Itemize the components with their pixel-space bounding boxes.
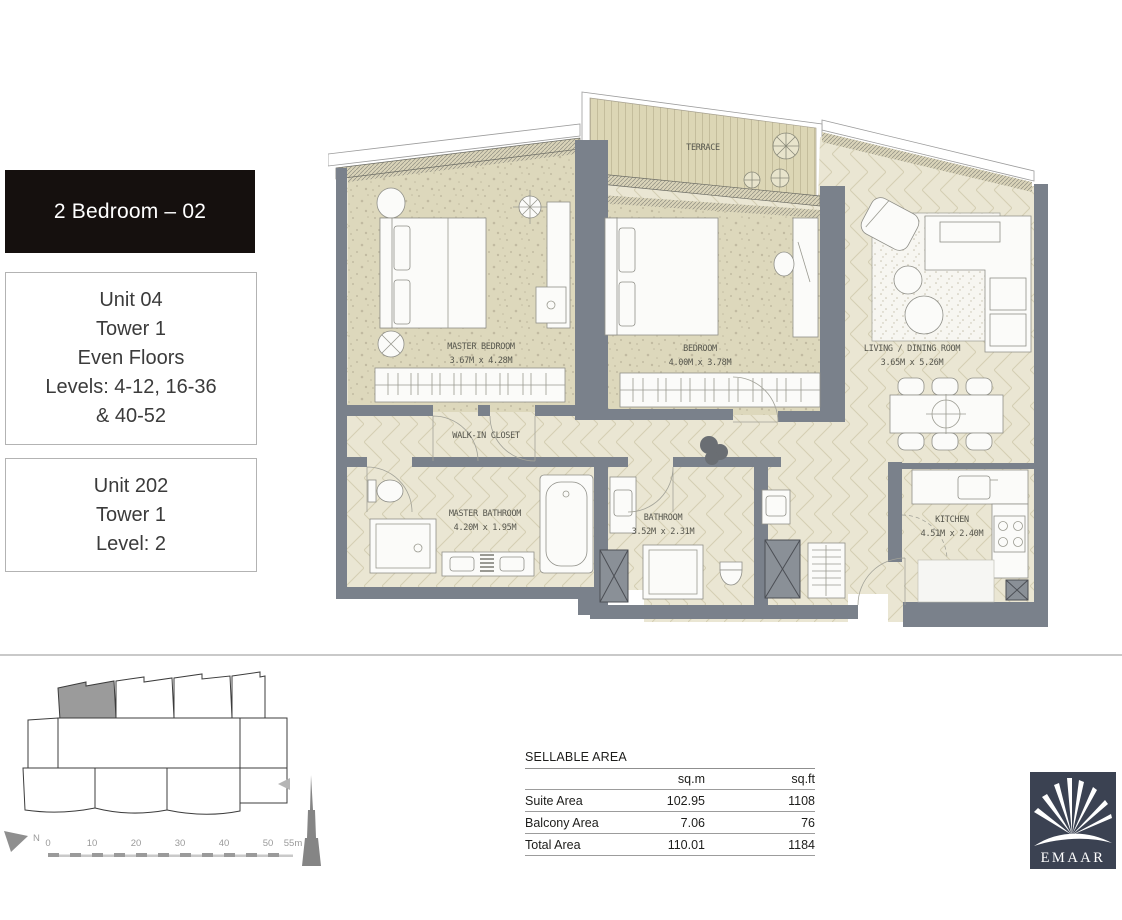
col-header-sqft: sq.ft (705, 772, 815, 786)
room-dims-master-bedroom: 3.67M x 4.28M (450, 356, 513, 366)
room-label-terrace: TERRACE (686, 143, 720, 153)
svg-text:30: 30 (175, 838, 186, 849)
emaar-logo: EMAAR (1030, 772, 1116, 869)
table-row: Balcony Area 7.06 76 (525, 812, 815, 834)
row-sqm: 102.95 (635, 794, 705, 808)
stair-riser-icon (808, 543, 845, 598)
scale-bar: 0 10 20 30 40 50 55m (45, 838, 302, 857)
key-plan: N 0 10 20 30 40 50 55m (0, 660, 332, 875)
sellable-area-table: SELLABLE AREA sq.m sq.ft Suite Area 102.… (525, 750, 815, 856)
key-plan-highlighted-unit (58, 681, 116, 720)
room-dims-master-bathroom: 4.20M x 1.95M (454, 523, 517, 533)
unit-line: & 40-52 (96, 402, 166, 431)
col-header-sqm: sq.m (635, 772, 705, 786)
unit-line: Level: 2 (96, 530, 166, 559)
table-row: Total Area 110.01 1184 (525, 834, 815, 856)
room-label-living-dining: LIVING / DINING ROOM (864, 344, 961, 354)
room-label-bathroom: BATHROOM (644, 513, 683, 523)
plan-title: 2 Bedroom – 02 (54, 200, 206, 224)
brochure-page: 2 Bedroom – 02 Unit 04 Tower 1 Even Floo… (0, 0, 1122, 920)
wall (336, 168, 347, 592)
north-label: N (33, 833, 40, 844)
room-dims-bedroom: 4.00M x 3.78M (669, 358, 732, 368)
svg-text:10: 10 (87, 838, 98, 849)
room-label-walk-in-closet: WALK-IN CLOSET (452, 431, 520, 441)
table-row: Suite Area 102.95 1108 (525, 790, 815, 812)
row-sqm: 7.06 (635, 816, 705, 830)
unit-line: Unit 04 (99, 286, 162, 315)
row-label: Total Area (525, 838, 635, 852)
unit-line: Tower 1 (96, 501, 166, 530)
row-label: Balcony Area (525, 816, 635, 830)
burj-khalifa-icon (302, 775, 321, 866)
svg-text:40: 40 (219, 838, 230, 849)
unit-info-box-1: Unit 04 Tower 1 Even Floors Levels: 4-12… (5, 272, 257, 445)
row-label: Suite Area (525, 794, 635, 808)
wall (820, 186, 845, 422)
row-sqm: 110.01 (635, 838, 705, 852)
north-arrow-icon: N (4, 831, 40, 852)
room-label-master-bathroom: MASTER BATHROOM (449, 509, 521, 519)
room-dims-bathroom: 3.52M x 2.31M (632, 527, 695, 537)
svg-text:0: 0 (45, 838, 50, 849)
svg-text:55m: 55m (284, 838, 303, 849)
emaar-wordmark: EMAAR (1041, 850, 1106, 866)
table-header-row: sq.m sq.ft (525, 769, 815, 790)
plan-title-box: 2 Bedroom – 02 (5, 170, 255, 253)
row-sqft: 76 (705, 816, 815, 830)
room-label-kitchen: KITCHEN (935, 515, 969, 525)
room-label-bedroom: BEDROOM (683, 344, 717, 354)
room-dims-living-dining: 3.65M x 5.26M (881, 358, 944, 368)
svg-text:50: 50 (263, 838, 274, 849)
room-dims-kitchen: 4.51M x 2.40M (921, 529, 984, 539)
wall (575, 140, 608, 420)
svg-text:20: 20 (131, 838, 142, 849)
room-label-master-bedroom: MASTER BEDROOM (447, 342, 515, 352)
floor-plan: TERRACE MASTER BEDROOM 3.67M x 4.28M BED… (328, 82, 1068, 657)
table-title: SELLABLE AREA (525, 750, 815, 769)
unit-info-box-2: Unit 202 Tower 1 Level: 2 (5, 458, 257, 572)
unit-line: Even Floors (78, 344, 185, 373)
row-sqft: 1184 (705, 838, 815, 852)
unit-line: Unit 202 (94, 472, 169, 501)
unit-line: Levels: 4-12, 16-36 (45, 373, 216, 402)
row-sqft: 1108 (705, 794, 815, 808)
wall (1034, 184, 1048, 627)
unit-line: Tower 1 (96, 315, 166, 344)
divider-line (0, 654, 1122, 656)
